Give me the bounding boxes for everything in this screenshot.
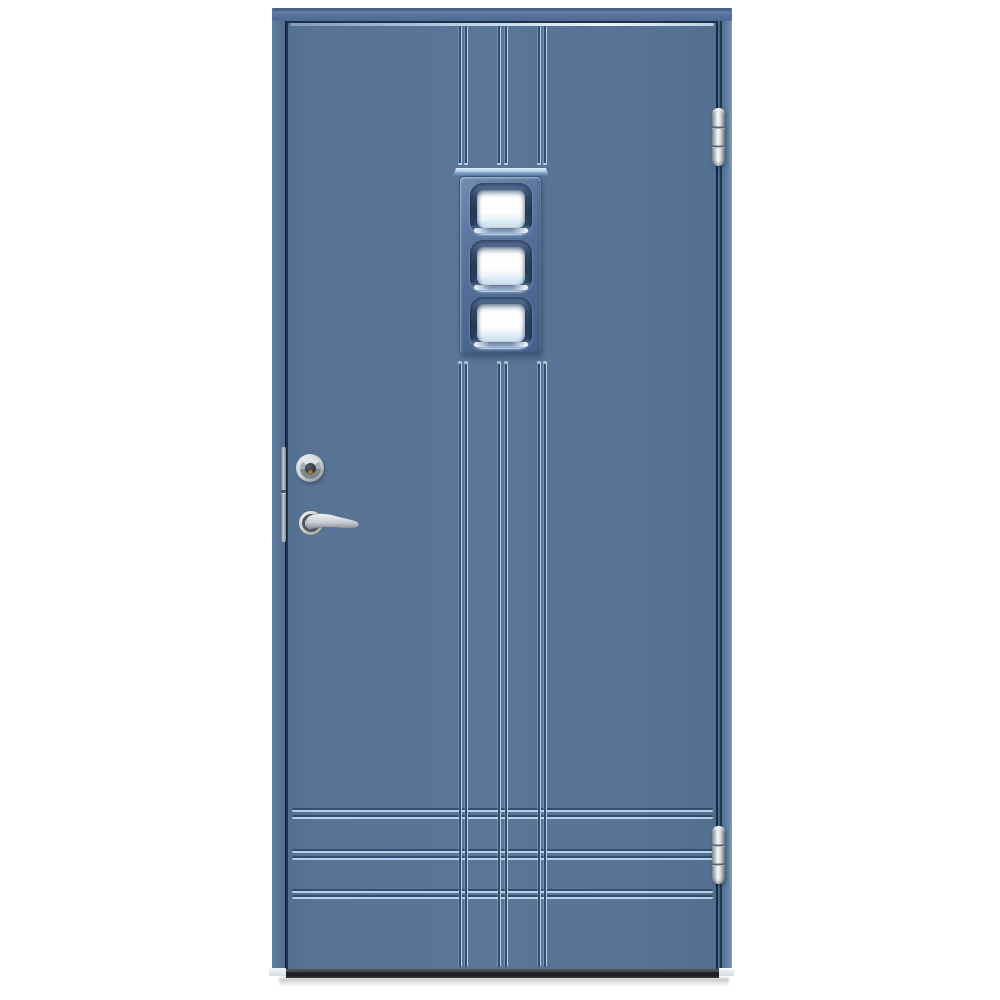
horizontal-groove (292, 849, 713, 853)
vertical-groove (543, 362, 547, 967)
horizontal-groove (292, 895, 713, 899)
hinge-knuckle-line (712, 126, 725, 129)
right-sill-cap (719, 969, 734, 976)
glazing-pane (470, 297, 532, 349)
hinge-knuckle-line (712, 863, 725, 866)
horizontal-groove (292, 856, 713, 860)
vertical-groove (543, 26, 547, 164)
vertical-groove (458, 26, 462, 164)
bottom-hinge (712, 826, 725, 884)
left-sill-cap (269, 968, 286, 976)
vertical-groove (458, 362, 462, 967)
horizontal-groove (292, 815, 713, 819)
hinge-knuckle-line (712, 844, 725, 847)
horizontal-groove (292, 889, 713, 893)
lever-handle (285, 500, 385, 550)
vertical-groove (464, 362, 468, 967)
cylinder-lock (296, 454, 324, 482)
faceplate-gap (281, 490, 286, 493)
lever-arm (306, 514, 359, 530)
vertical-groove (504, 26, 508, 164)
vertical-groove (497, 26, 501, 164)
drop-shadow (279, 978, 729, 986)
vertical-groove (504, 362, 508, 967)
vertical-groove (464, 26, 468, 164)
threshold-bar (286, 969, 719, 978)
hinge-knuckle-line (712, 145, 725, 148)
vertical-groove (537, 362, 541, 967)
leaf-top-highlight (290, 23, 714, 26)
glass (477, 190, 525, 228)
vertical-groove (537, 26, 541, 164)
door-frame-head (272, 8, 732, 21)
product-photo-stage: Front view of a blue exterior entry door… (0, 0, 1000, 1000)
horizontal-groove (292, 808, 713, 812)
glass (477, 247, 525, 285)
glazing-pane (470, 183, 532, 235)
top-hinge (712, 108, 725, 166)
glass (477, 304, 525, 342)
door-leaf (286, 21, 719, 969)
vertical-groove (497, 362, 501, 967)
glazing-pane (470, 240, 532, 292)
keyhole-icon (308, 470, 313, 475)
